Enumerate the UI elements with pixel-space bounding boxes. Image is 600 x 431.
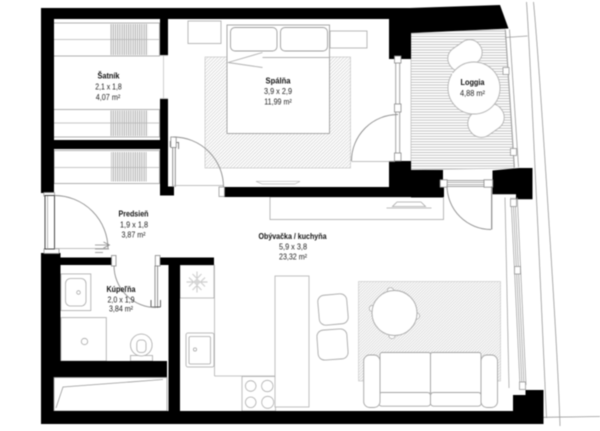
svg-text:Spálňa: Spálňa <box>266 76 291 86</box>
svg-text:Kúpeľňa: Kúpeľňa <box>107 284 136 294</box>
svg-text:4,88 m²: 4,88 m² <box>460 89 485 98</box>
svg-text:3,84 m²: 3,84 m² <box>109 305 133 314</box>
svg-text:2,1 x 1,8: 2,1 x 1,8 <box>95 83 122 92</box>
svg-text:1,9 x 1,8: 1,9 x 1,8 <box>120 221 149 230</box>
svg-text:3,9 x 2,9: 3,9 x 2,9 <box>264 87 293 96</box>
svg-text:5,9 x 3,8: 5,9 x 3,8 <box>279 243 308 252</box>
svg-text:Loggia: Loggia <box>461 77 485 87</box>
svg-text:2,0 x 1,9: 2,0 x 1,9 <box>108 296 135 305</box>
svg-text:4,07 m²: 4,07 m² <box>96 93 121 102</box>
svg-text:3,87 m²: 3,87 m² <box>122 231 146 240</box>
svg-text:23,32 m²: 23,32 m² <box>279 253 307 262</box>
svg-text:Šatník: Šatník <box>98 70 120 81</box>
svg-text:Obývačka / kuchyňa: Obývačka / kuchyňa <box>259 231 327 241</box>
svg-text:11,99 m²: 11,99 m² <box>264 98 292 107</box>
svg-text:Predsieň: Predsieň <box>119 209 149 219</box>
